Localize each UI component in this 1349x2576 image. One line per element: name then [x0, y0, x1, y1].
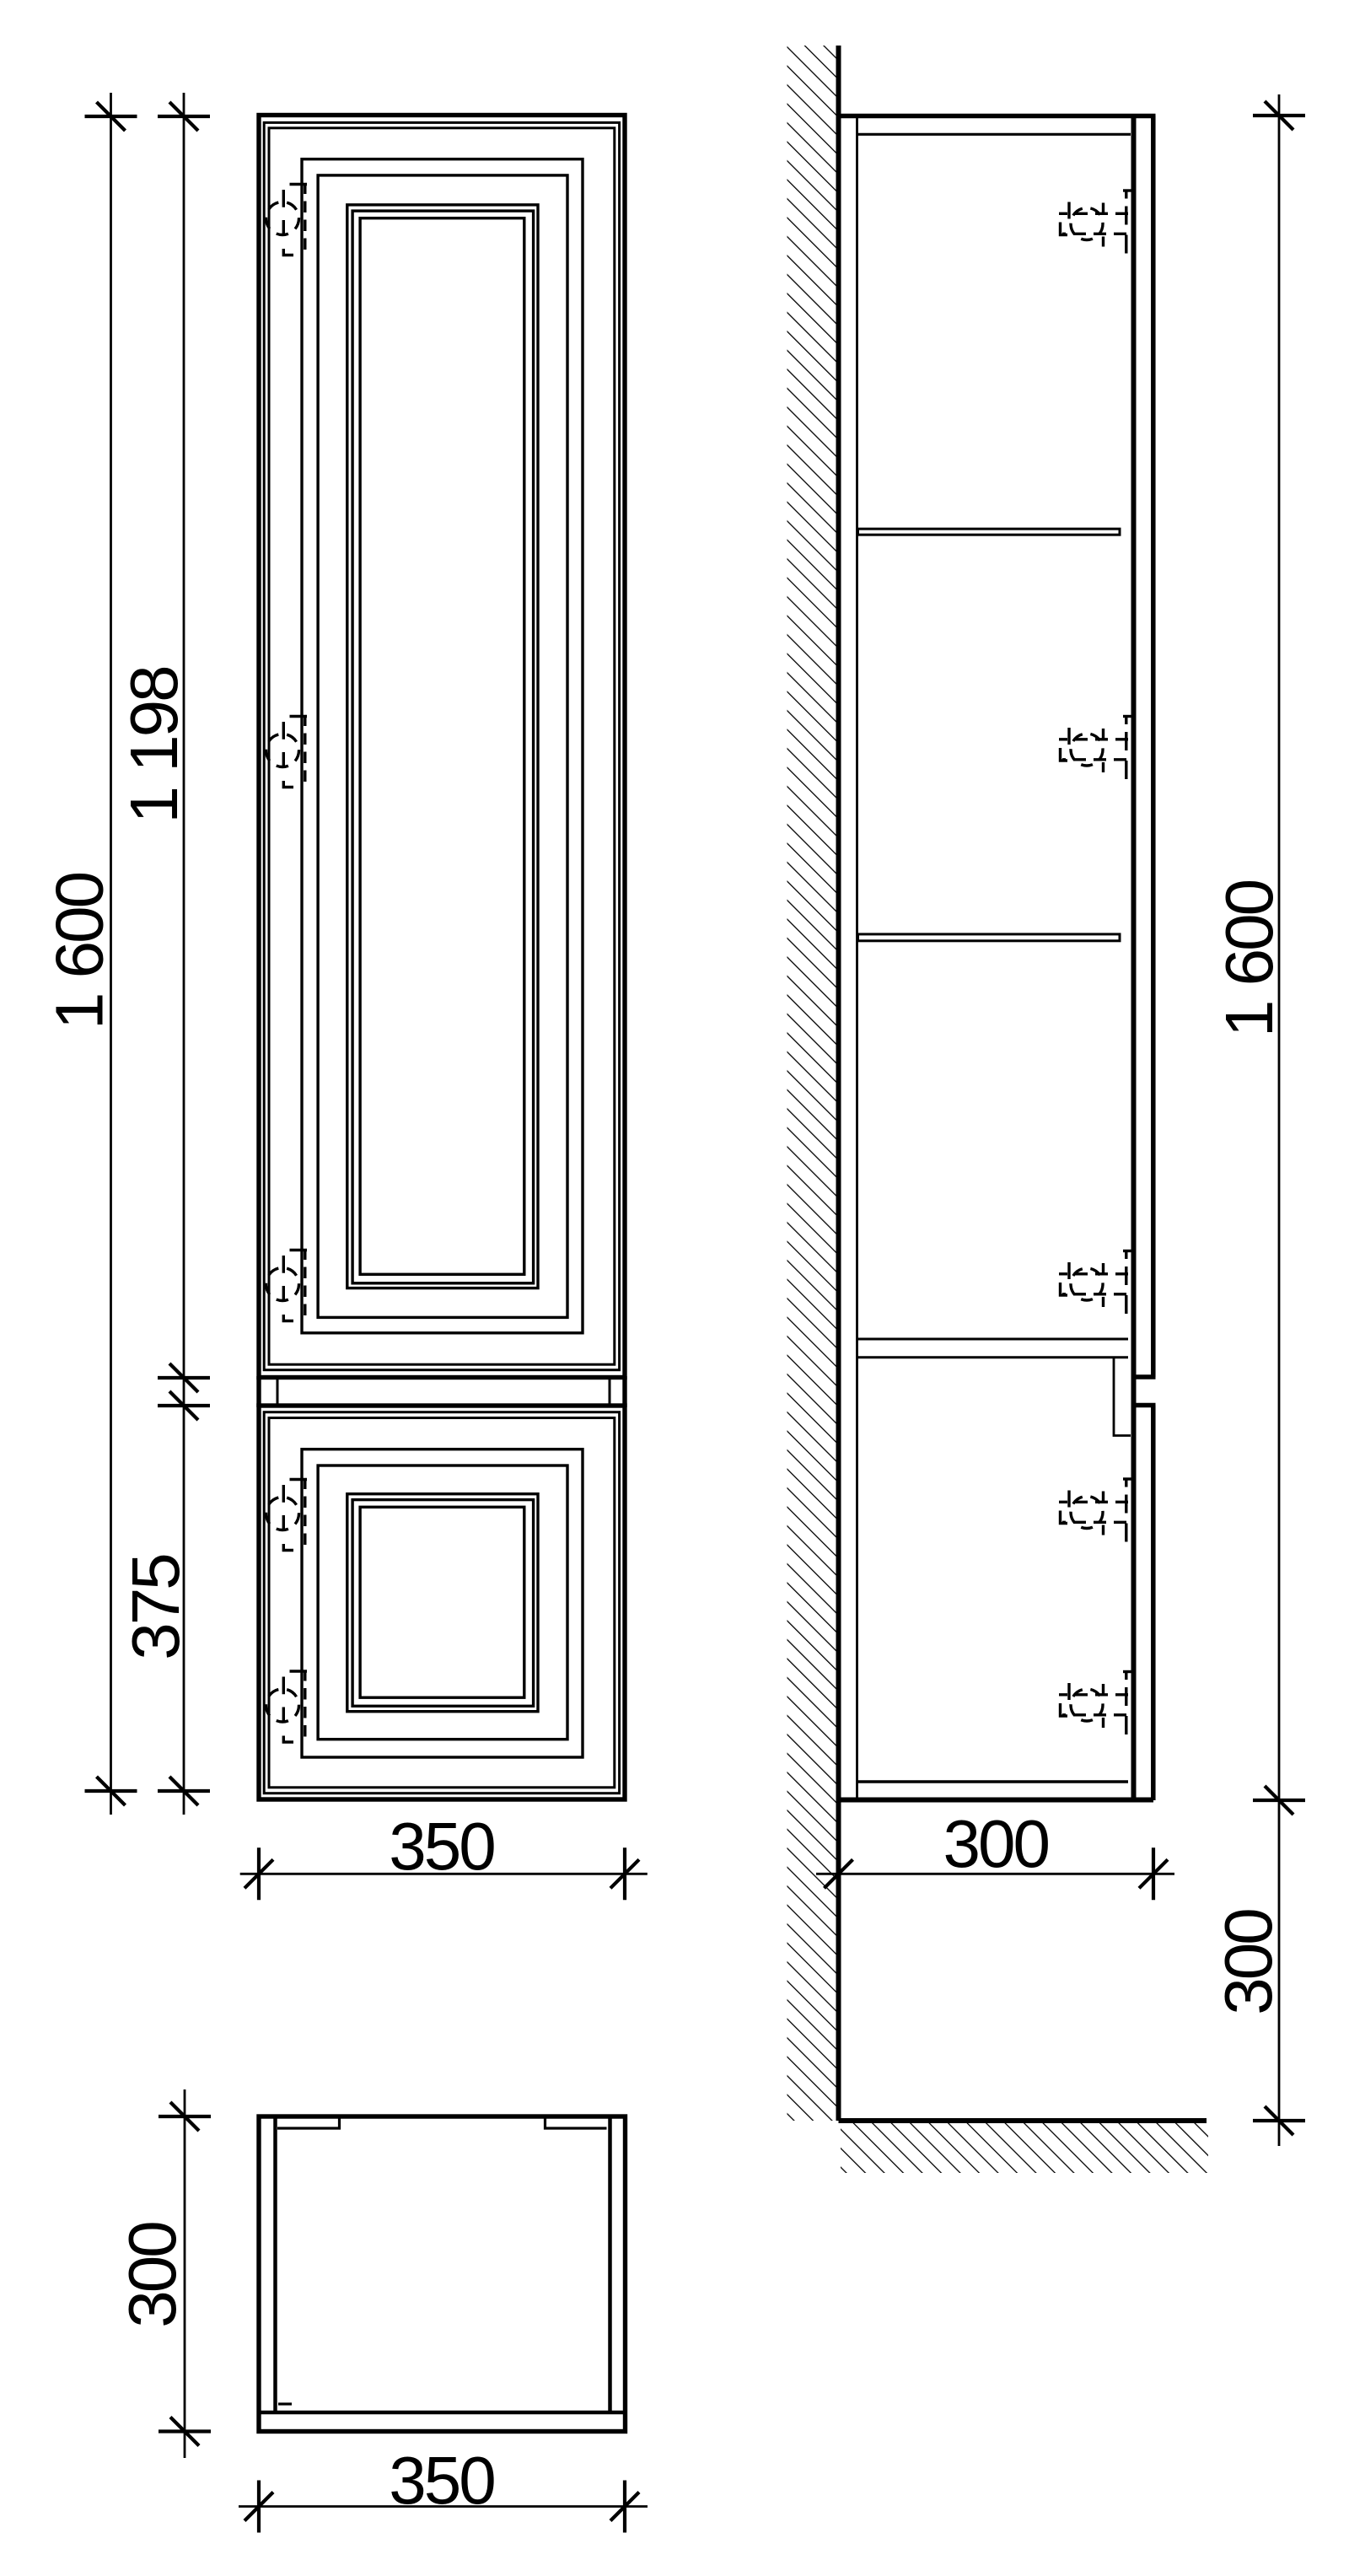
svg-text:300: 300 — [115, 2223, 190, 2328]
svg-text:375: 375 — [118, 1555, 193, 1660]
svg-text:350: 350 — [389, 1809, 494, 1884]
svg-text:1 600: 1 600 — [42, 873, 117, 1030]
svg-text:1 198: 1 198 — [116, 667, 191, 824]
svg-text:300: 300 — [1211, 1910, 1286, 2015]
svg-text:350: 350 — [389, 2443, 494, 2518]
svg-text:300: 300 — [943, 1806, 1048, 1881]
svg-text:1 600: 1 600 — [1212, 880, 1287, 1037]
